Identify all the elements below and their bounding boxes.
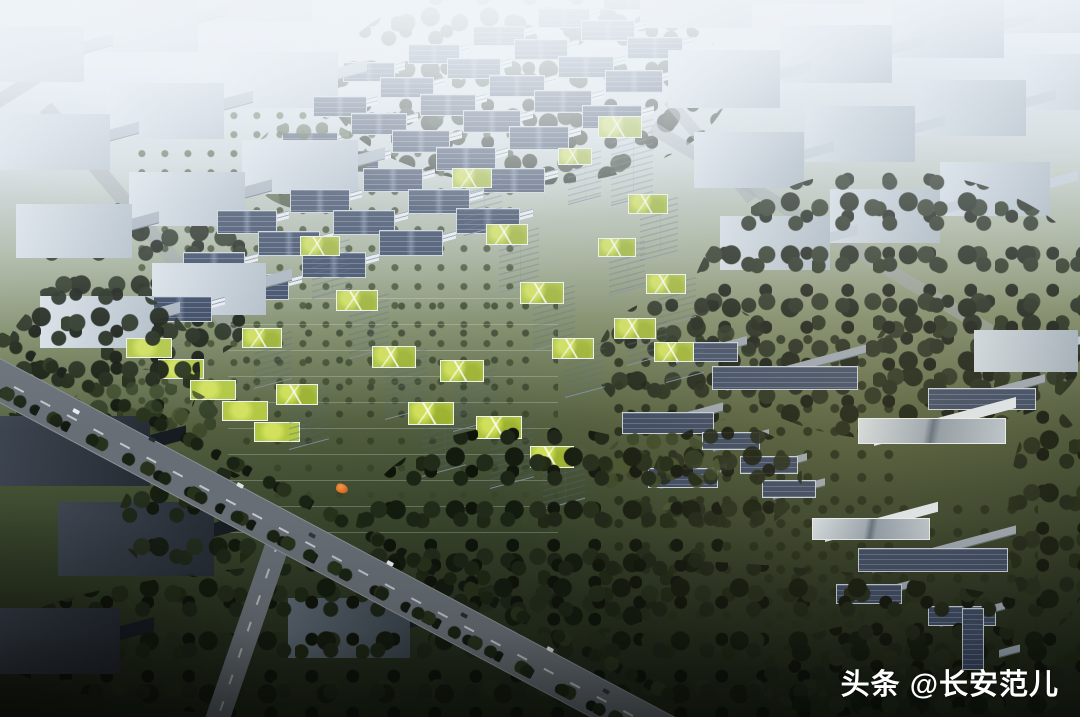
office-tower-roof	[242, 328, 282, 348]
office-tower-roof	[336, 290, 378, 311]
office-tower-roof	[452, 168, 492, 188]
office-tower-roof	[558, 148, 592, 165]
office-tower-roof	[552, 338, 594, 359]
office-tower-roof	[654, 342, 694, 362]
warehouse-building-roof	[974, 330, 1078, 372]
warehouse-building-roof	[694, 132, 804, 188]
warehouse-building-roof	[0, 608, 120, 674]
office-tower-roof	[598, 238, 636, 257]
office-tower-roof	[408, 402, 454, 425]
factory-building-roof	[605, 70, 663, 93]
warehouse-building-roof	[640, 0, 752, 28]
office-tower-roof	[628, 194, 668, 214]
office-tower-roof	[300, 236, 340, 256]
warehouse-building-roof	[0, 114, 110, 170]
watermark-text: 头条 @长安范儿	[841, 661, 1059, 703]
office-tower-roof	[440, 360, 484, 382]
warehouse-building-roof	[668, 50, 780, 108]
warehouse-building-roof	[16, 204, 132, 258]
campus-building-roof	[858, 418, 1006, 444]
warehouse-building-roof	[752, 0, 864, 4]
green-terrace-building-roof	[222, 401, 268, 421]
factory-building-roof	[509, 126, 569, 150]
office-tower-roof	[520, 282, 564, 304]
campus-building-roof	[712, 366, 858, 390]
office-tower-roof	[486, 224, 528, 245]
office-tower-roof	[614, 318, 656, 339]
campus-building-roof	[858, 548, 1008, 572]
office-tower-roof	[372, 346, 416, 368]
aerial-rendering: 头条 @长安范儿	[0, 0, 1080, 717]
campus-building-roof	[812, 518, 930, 540]
office-tower-roof	[598, 116, 642, 138]
factory-building-roof	[379, 230, 443, 256]
tree-canopy	[1008, 408, 1080, 628]
office-tower-roof	[646, 274, 686, 294]
warehouse-building-roof	[0, 26, 84, 82]
office-tower-roof	[276, 384, 318, 405]
